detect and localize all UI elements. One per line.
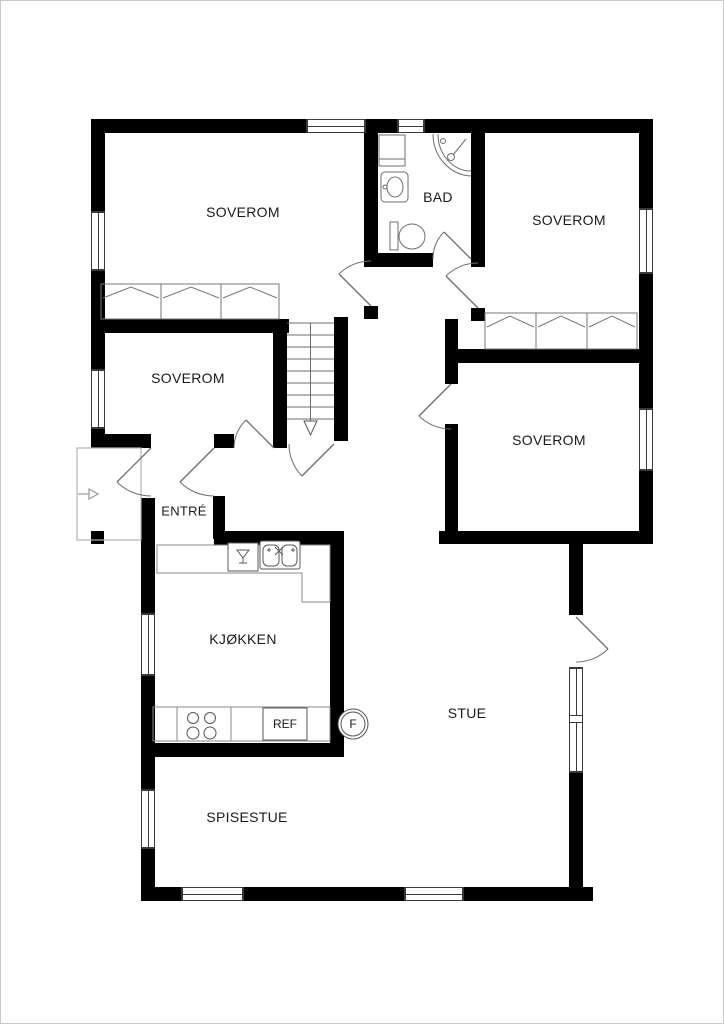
wall [464, 887, 593, 901]
window [181, 887, 244, 901]
shower [433, 134, 471, 176]
wall [364, 306, 378, 319]
wardrobe-row [101, 284, 279, 319]
fixture-label-fridge: REF [273, 717, 297, 731]
wall [471, 308, 485, 321]
window [569, 667, 583, 773]
wall [244, 887, 404, 901]
wall [366, 119, 397, 133]
wall [471, 133, 485, 267]
room-label-bath: BAD [423, 189, 453, 205]
wall [141, 676, 155, 789]
room-label-bedroom-br: SOVEROM [512, 432, 586, 448]
wall [214, 434, 234, 448]
wall [273, 319, 287, 448]
balcony-door [576, 617, 608, 662]
stair-door [289, 444, 334, 476]
window [404, 887, 464, 901]
wall [141, 743, 344, 757]
bath-door [433, 232, 471, 259]
floor-plan: SOVEROM BAD SOVEROM SOVEROM SOVEROM ENTR… [0, 0, 724, 1024]
wall [334, 317, 348, 441]
wardrobe-row [485, 313, 637, 349]
wall [569, 538, 583, 615]
window [141, 789, 155, 849]
window [91, 369, 105, 429]
bedroom-tl-door [339, 261, 371, 306]
wall [569, 773, 583, 901]
bedroom-tr-door [446, 263, 478, 308]
window [91, 211, 105, 271]
bedroom-ml-door [234, 420, 274, 448]
wall [91, 133, 105, 211]
wall [639, 133, 653, 208]
wall [445, 424, 458, 531]
staircase [287, 323, 334, 435]
fixture-label-fireplace: F [349, 717, 356, 731]
wall [141, 498, 155, 613]
front-door [117, 448, 151, 496]
wall [214, 531, 344, 545]
wall [439, 531, 653, 544]
vestibule-door [180, 448, 214, 496]
stove [187, 713, 216, 740]
wall [425, 119, 653, 133]
wall [445, 319, 458, 384]
window [639, 208, 653, 274]
kitchen-counter-top [157, 545, 330, 602]
window [397, 119, 425, 133]
entrance-porch [77, 448, 141, 540]
room-label-kitchen: KJØKKEN [209, 631, 276, 647]
window [141, 613, 155, 676]
wall [213, 496, 225, 539]
room-label-dining: SPISESTUE [206, 809, 287, 825]
wall [378, 253, 433, 267]
wall [639, 274, 653, 408]
bath-cabinet [379, 135, 405, 166]
wall [91, 531, 104, 544]
room-label-bedroom-tr: SOVEROM [532, 212, 606, 228]
room-label-bedroom-ml: SOVEROM [151, 370, 225, 386]
toilet [390, 222, 425, 250]
wall [141, 849, 155, 901]
room-label-entrance: ENTRÉ [161, 504, 207, 519]
bath-sink [381, 172, 408, 202]
kitchen-sink [260, 541, 300, 569]
wall [330, 531, 344, 757]
wall [91, 434, 151, 448]
dishwasher [228, 543, 258, 571]
wall [91, 119, 306, 133]
window [306, 119, 366, 133]
room-label-living: STUE [448, 705, 487, 721]
window [639, 408, 653, 471]
wall [364, 133, 378, 267]
wall [91, 319, 289, 333]
kitchen-counter-bottom [153, 707, 330, 741]
room-label-bedroom-tl: SOVEROM [206, 204, 280, 220]
plan-detail-layer [1, 1, 724, 1024]
wall [458, 349, 653, 363]
bedroom-br-door [419, 384, 451, 429]
